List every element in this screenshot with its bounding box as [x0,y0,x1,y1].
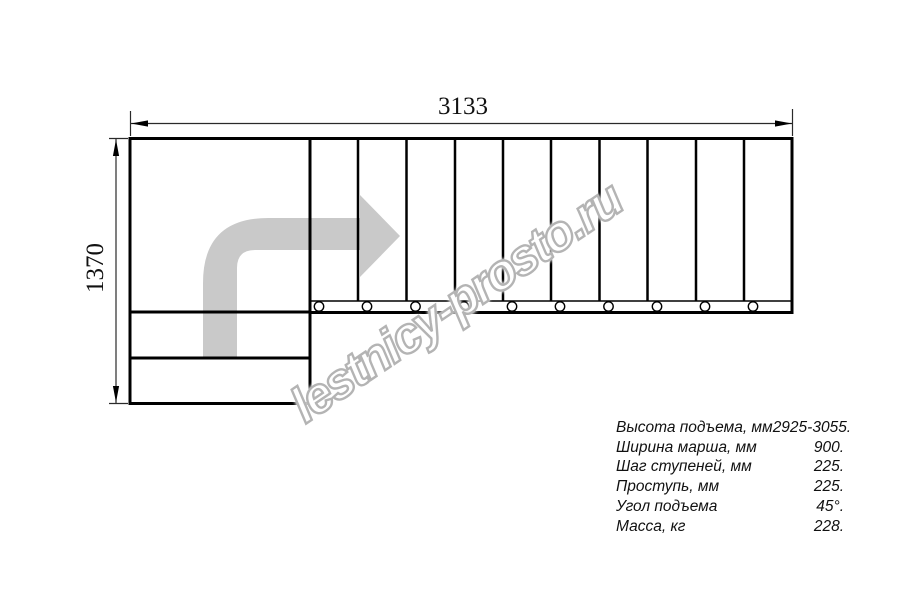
spec-row-mass: Масса, кг 228. [616,517,844,537]
spec-label: Угол подъема [616,497,717,517]
dimension-width-label: 3133 [413,93,513,121]
spec-value: 225. [814,477,844,497]
dimension-arrowhead [131,120,148,126]
dimension-height-label: 1370 [82,218,110,318]
baluster-circles [314,302,757,311]
baluster-circle [314,302,323,311]
spec-row-rise-angle: Угол подъема 45°. [616,497,844,517]
spec-table: Высота подъема, мм 2925-3055. Ширина мар… [616,418,844,536]
spec-value: 228. [814,517,844,537]
spec-label: Масса, кг [616,517,685,537]
baluster-circle [700,302,709,311]
baluster-circle [507,302,516,311]
baluster-circle [604,302,613,311]
spec-label: Высота подъема, мм [616,418,773,438]
baluster-circle [652,302,661,311]
spec-value: 900. [814,438,844,458]
baluster-circle [362,302,371,311]
dimension-arrowhead [113,140,119,157]
spec-value: 45°. [816,497,844,517]
spec-row-flight-width: Ширина марша, мм 900. [616,438,844,458]
dimension-arrowhead [113,386,119,403]
spec-row-rise-height: Высота подъема, мм 2925-3055. [616,418,844,438]
spec-label: Ширина марша, мм [616,438,757,458]
staircase-drawing-page: 3133 1370 lestnicy-prosto.ru Высота подъ… [0,0,900,600]
baluster-circle [411,302,420,311]
baluster-circle [459,302,468,311]
baluster-circle [555,302,564,311]
dimension-arrowhead [775,120,792,126]
spec-label: Проступь, мм [616,477,719,497]
dimension-height [109,139,128,404]
spec-value: 2925-3055. [773,418,851,438]
spec-row-tread: Проступь, мм 225. [616,477,844,497]
spec-row-step-pitch: Шаг ступеней, мм 225. [616,457,844,477]
spec-label: Шаг ступеней, мм [616,457,752,477]
tread-lines [358,139,744,302]
turn-direction-arrow [203,195,400,358]
spec-value: 225. [814,457,844,477]
baluster-circle [748,302,757,311]
